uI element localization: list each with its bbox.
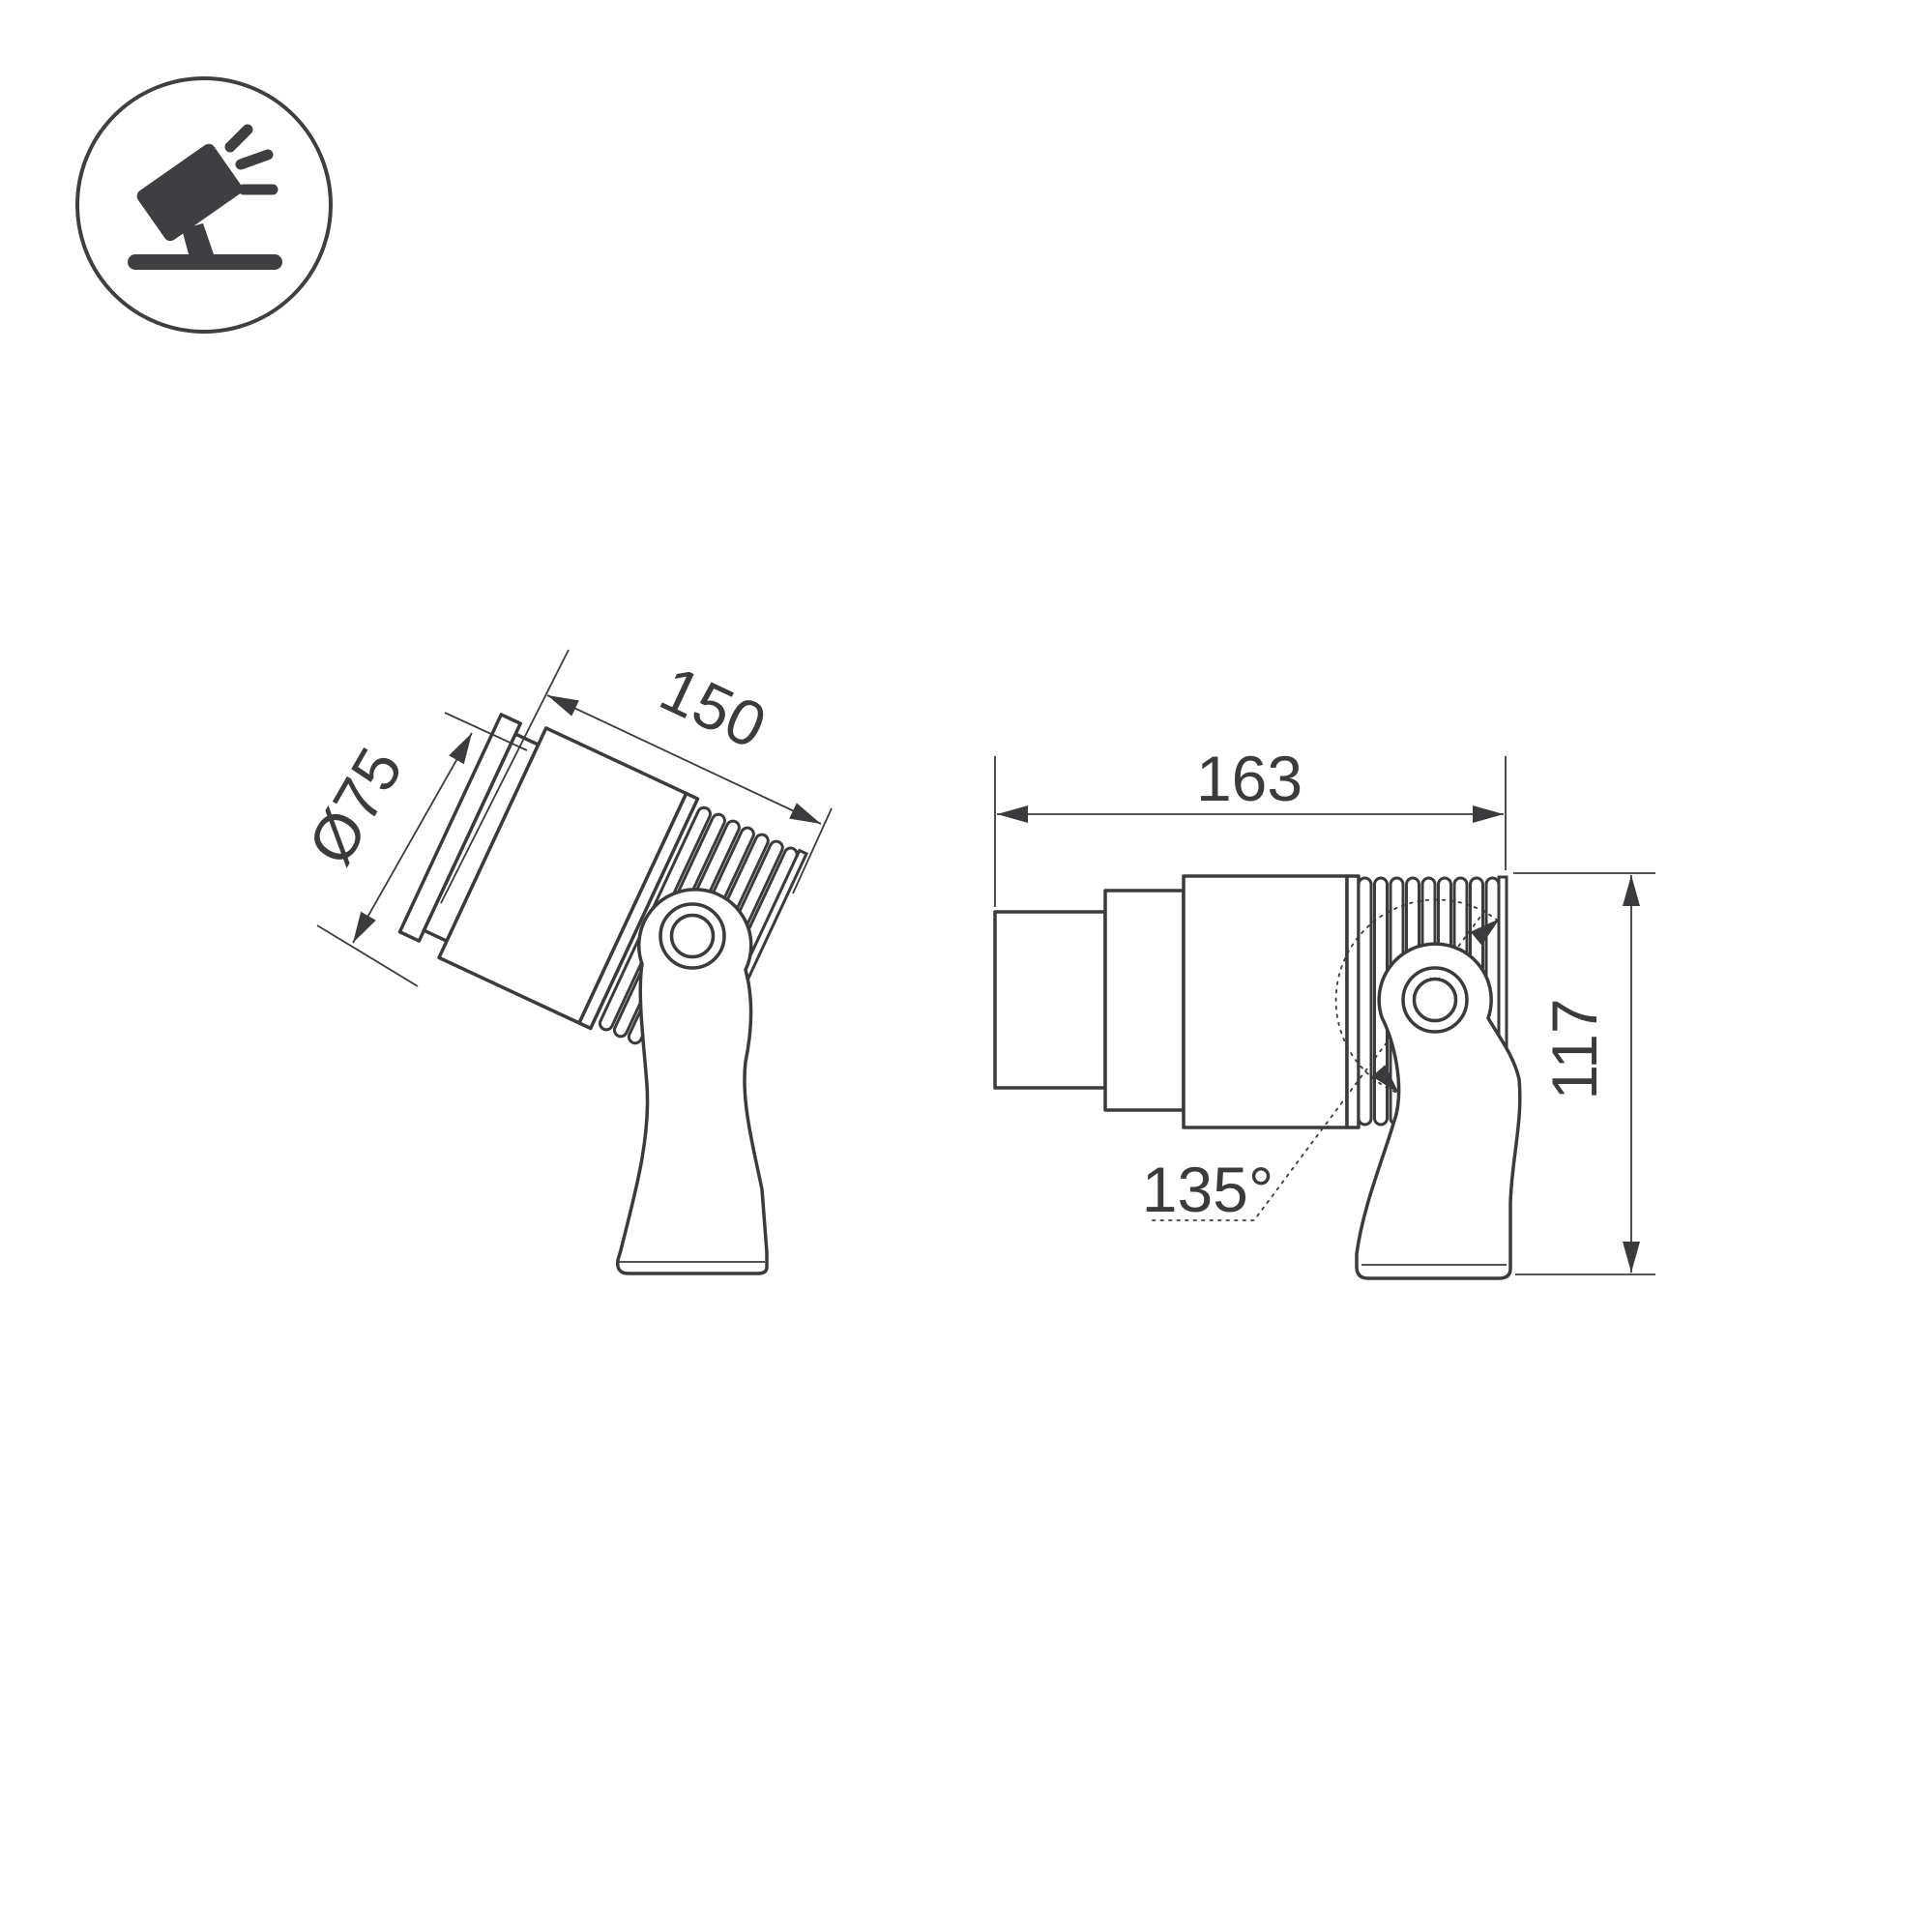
height-label: 117 bbox=[1538, 998, 1610, 1099]
dimension-drawing-canvas: Ø75 150 bbox=[0, 0, 1932, 1932]
lamp-body bbox=[1184, 876, 1347, 1127]
swivel-angle-label: 135° bbox=[1142, 1154, 1274, 1225]
drawing-page: Ø75 150 bbox=[0, 0, 1932, 1932]
left-pivot-bolt bbox=[672, 916, 714, 957]
right-pivot-bolt bbox=[1415, 980, 1456, 1021]
rear-cap bbox=[995, 912, 1105, 1088]
mid-section bbox=[1105, 891, 1184, 1110]
tilted-spotlight-icon bbox=[77, 78, 331, 332]
width-label: 163 bbox=[1196, 743, 1303, 814]
heatsink-collar bbox=[1347, 876, 1359, 1127]
